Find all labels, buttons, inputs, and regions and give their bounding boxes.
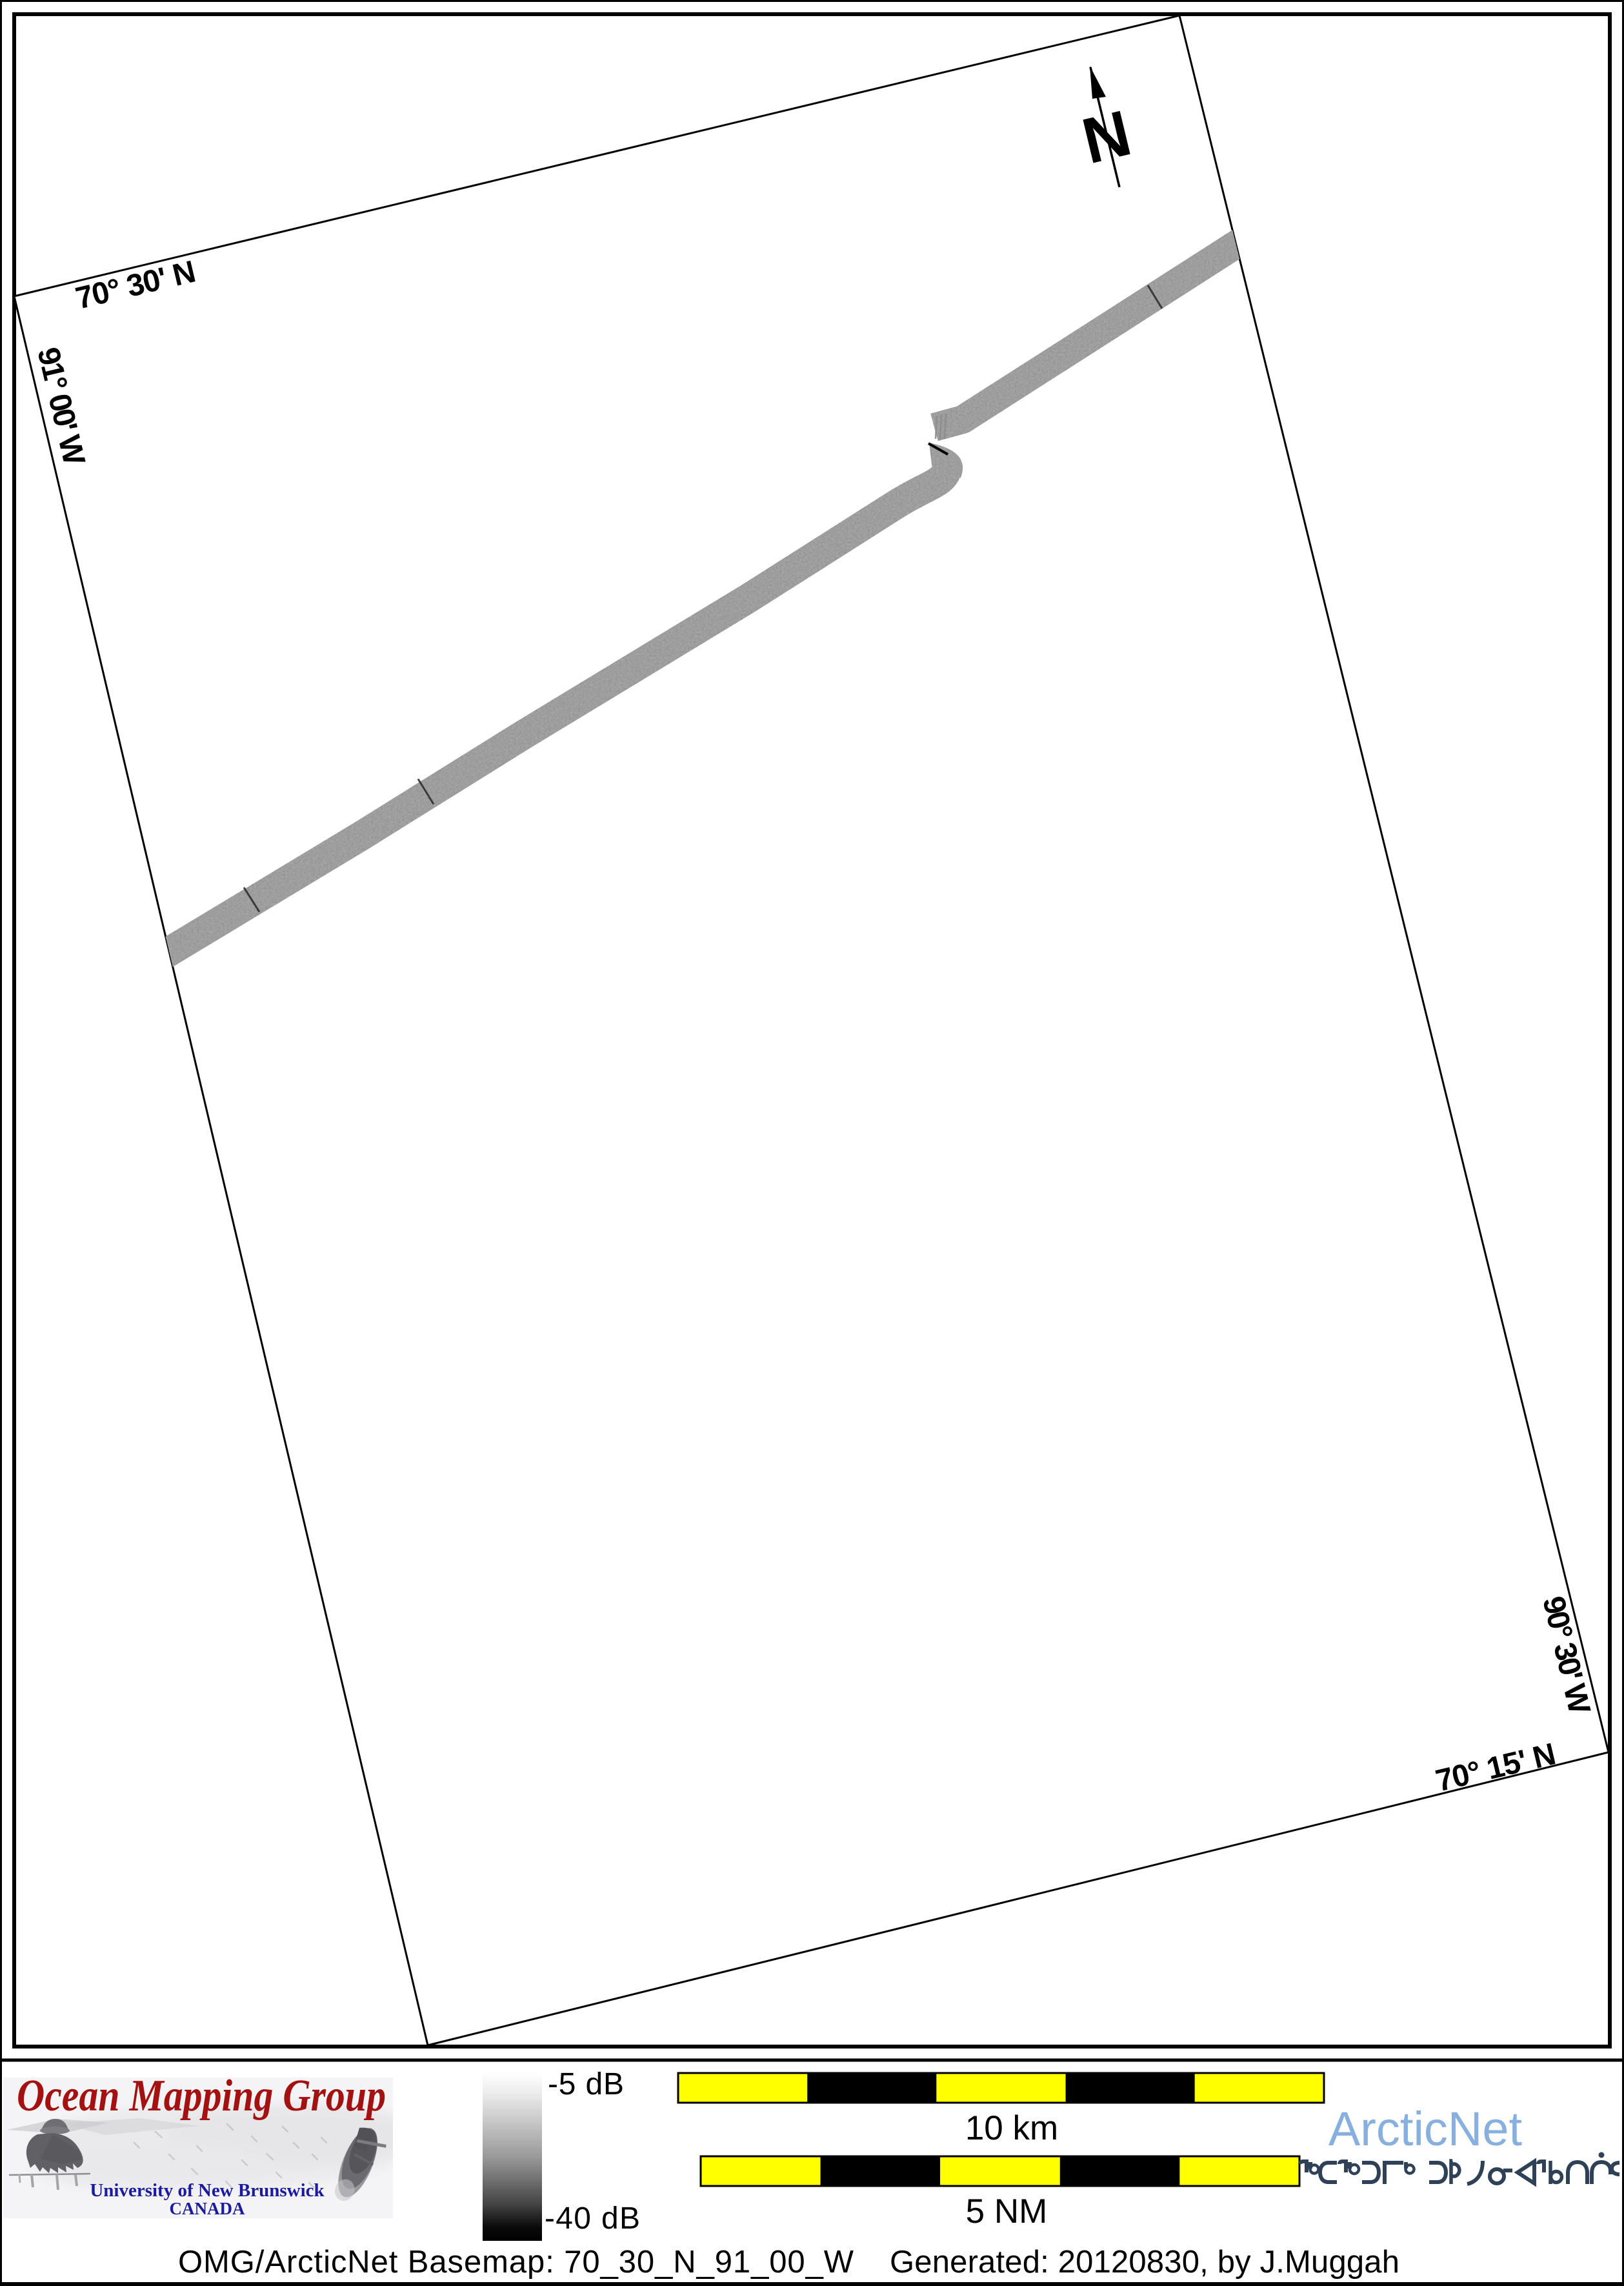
svg-text:-40 dB: -40 dB	[545, 2201, 640, 2236]
svg-text:Ocean Mapping Group: Ocean Mapping Group	[17, 2071, 386, 2121]
svg-text:Generated: 20120830, by J.Mugg: Generated: 20120830, by J.Muggah	[890, 2245, 1399, 2280]
svg-text:CANADA: CANADA	[170, 2199, 245, 2218]
svg-text:10 km: 10 km	[965, 2109, 1058, 2147]
svg-text:-5 dB: -5 dB	[548, 2067, 624, 2101]
svg-text:ArcticNet: ArcticNet	[1328, 2102, 1523, 2156]
svg-text:University of New Brunswick: University of New Brunswick	[90, 2180, 325, 2201]
svg-text:5 NM: 5 NM	[966, 2192, 1048, 2230]
svg-text:OMG/ArcticNet Basemap: 70_30_N: OMG/ArcticNet Basemap: 70_30_N_91_00_W	[178, 2245, 854, 2280]
